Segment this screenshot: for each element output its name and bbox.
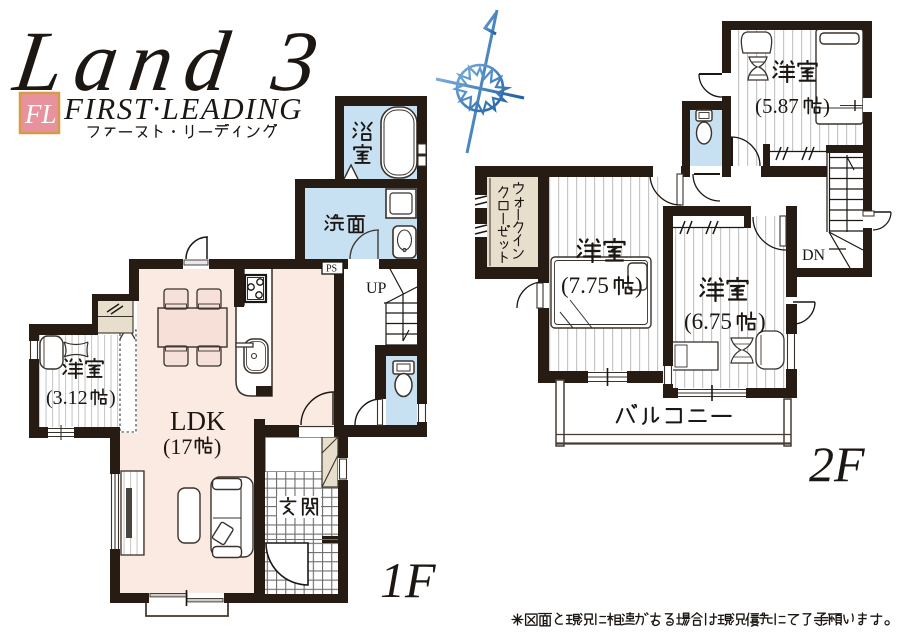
svg-text:): ) xyxy=(214,434,221,459)
svg-text:FIRST·LEADING: FIRST·LEADING xyxy=(63,91,303,126)
svg-text:LDK: LDK xyxy=(170,406,226,436)
svg-text:2F: 2F xyxy=(809,436,865,492)
svg-text:(17: (17 xyxy=(163,434,192,459)
svg-text:(3.12: (3.12 xyxy=(46,387,88,409)
svg-text:DN: DN xyxy=(802,247,826,264)
svg-text:(5.87: (5.87 xyxy=(755,94,799,118)
svg-text:1F: 1F xyxy=(380,552,436,608)
svg-text:): ) xyxy=(823,94,830,118)
svg-text:): ) xyxy=(758,309,766,334)
svg-text:(7.75: (7.75 xyxy=(561,273,609,298)
svg-text:FL: FL xyxy=(24,99,57,129)
svg-text:): ) xyxy=(635,273,643,298)
svg-text:UP: UP xyxy=(366,280,387,297)
svg-text:PS: PS xyxy=(326,264,337,275)
svg-text:(6.75: (6.75 xyxy=(684,309,732,334)
svg-text:): ) xyxy=(109,387,116,409)
